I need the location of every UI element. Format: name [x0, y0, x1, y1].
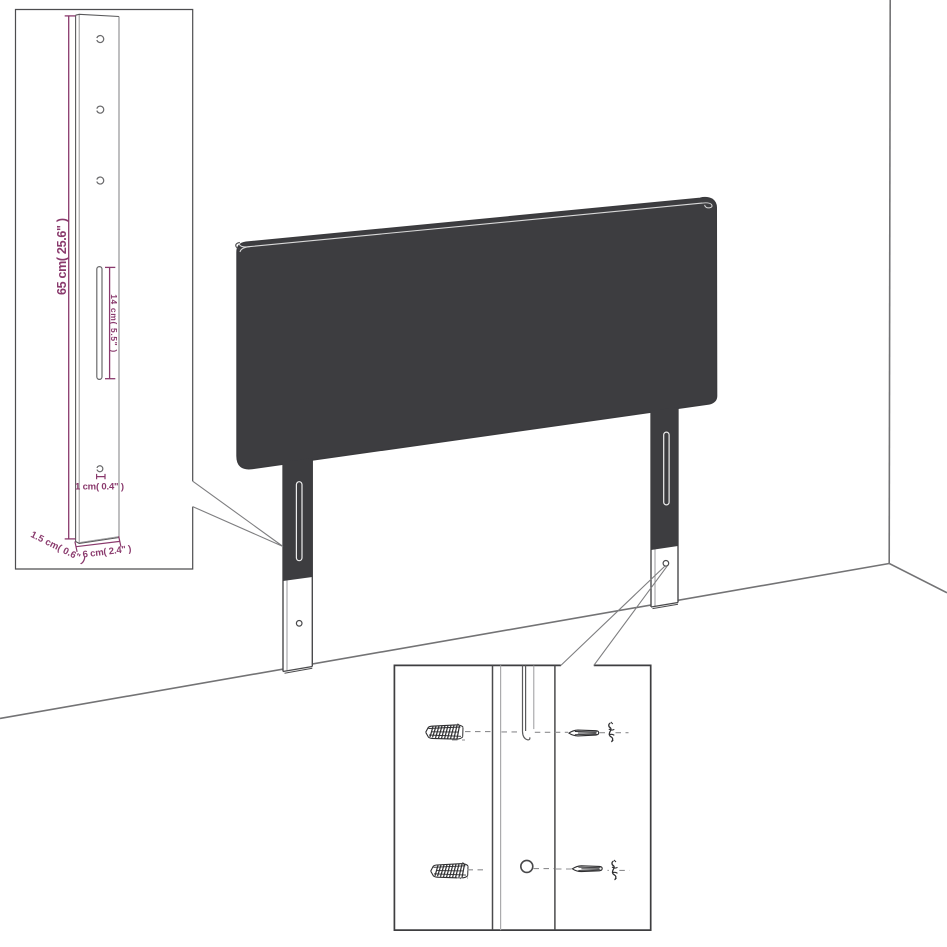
svg-text:1 cm( 0.4" ): 1 cm( 0.4" ) — [75, 482, 124, 493]
svg-text:6 cm( 2.4" ): 6 cm( 2.4" ) — [82, 544, 132, 561]
svg-text:65 cm( 25.6" ): 65 cm( 25.6" ) — [55, 218, 69, 295]
svg-text:14 cm( 5.5" ): 14 cm( 5.5" ) — [109, 294, 119, 352]
svg-text:1.5 cm( 0.6" ): 1.5 cm( 0.6" ) — [29, 529, 88, 566]
